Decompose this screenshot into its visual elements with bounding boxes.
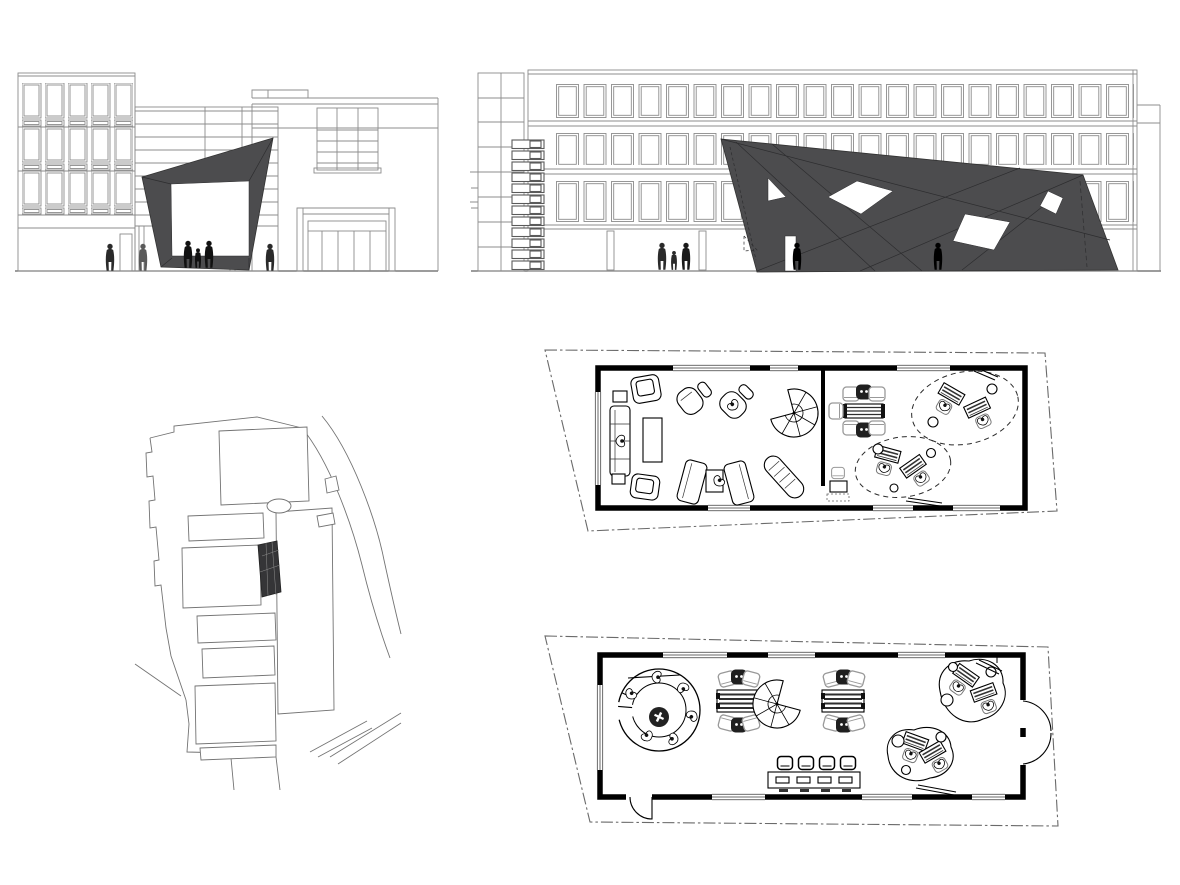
upper-floor-plan xyxy=(545,350,1057,531)
louver-window xyxy=(317,108,378,170)
street-elevation xyxy=(470,70,1161,272)
entry-door xyxy=(626,793,652,820)
facade-grid-block xyxy=(18,73,135,271)
armchair xyxy=(629,473,660,501)
ground-floor-plan xyxy=(545,636,1058,826)
bar-counter xyxy=(768,757,860,793)
facade-annex xyxy=(1137,105,1160,271)
pavilion-footprint xyxy=(258,541,281,597)
sofa xyxy=(610,406,630,476)
architectural-drawing xyxy=(0,0,1180,885)
side-table xyxy=(613,391,627,402)
armchair xyxy=(630,374,662,404)
facade-canopy-block xyxy=(252,90,438,271)
building-footprints xyxy=(182,427,339,760)
table-group xyxy=(821,670,866,733)
side-table xyxy=(612,474,625,484)
site-plan xyxy=(135,416,401,790)
people xyxy=(658,243,690,270)
entry-elevation xyxy=(15,73,438,271)
drawing-sheet xyxy=(0,0,1180,885)
coffee-table xyxy=(643,418,662,462)
entrance-canopy xyxy=(297,208,395,271)
workstation-pod xyxy=(887,727,953,780)
